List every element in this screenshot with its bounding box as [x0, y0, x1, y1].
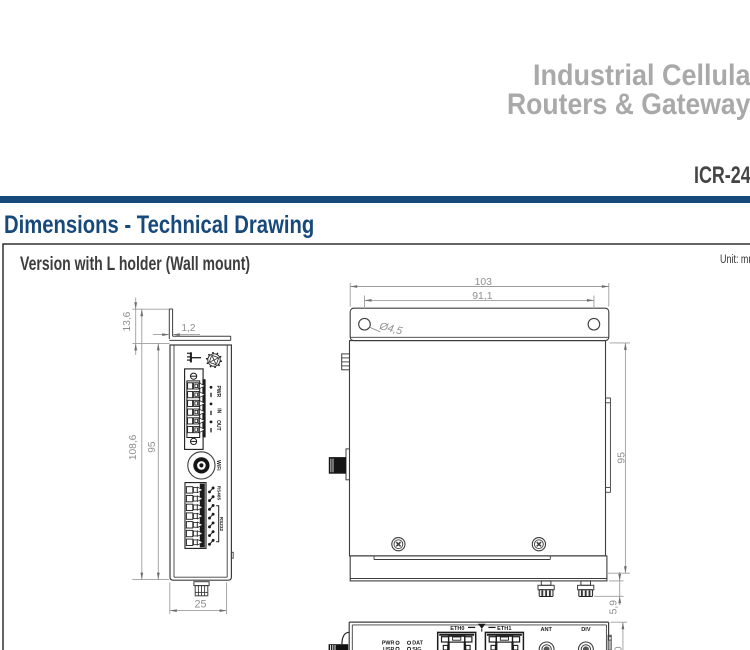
- svg-text:ETH0: ETH0: [450, 626, 464, 632]
- svg-text:95: 95: [616, 452, 627, 464]
- svg-text:108,6: 108,6: [128, 434, 139, 460]
- svg-text:OUT: OUT: [215, 420, 221, 431]
- svg-text:WiFi: WiFi: [215, 460, 221, 471]
- svg-text:5,9: 5,9: [608, 600, 619, 615]
- svg-text:ANT: ANT: [540, 627, 552, 633]
- svg-text:30: 30: [614, 646, 625, 650]
- svg-text:95: 95: [147, 441, 158, 453]
- svg-text:DIV: DIV: [581, 627, 591, 633]
- svg-text:RS232: RS232: [219, 517, 224, 532]
- svg-text:IN: IN: [215, 408, 221, 413]
- svg-text:ETH1: ETH1: [497, 626, 511, 632]
- svg-text:1,2: 1,2: [181, 323, 195, 334]
- svg-text:PWR: PWR: [382, 641, 395, 647]
- svg-text:RS485: RS485: [216, 486, 221, 501]
- svg-text:103: 103: [475, 277, 493, 288]
- svg-text:DAT: DAT: [412, 641, 423, 647]
- svg-text:13,6: 13,6: [122, 311, 133, 331]
- svg-text:25: 25: [194, 598, 206, 610]
- svg-text:PWR: PWR: [215, 385, 221, 397]
- svg-text:91,1: 91,1: [472, 291, 492, 302]
- svg-text:Ø4,5: Ø4,5: [377, 320, 403, 337]
